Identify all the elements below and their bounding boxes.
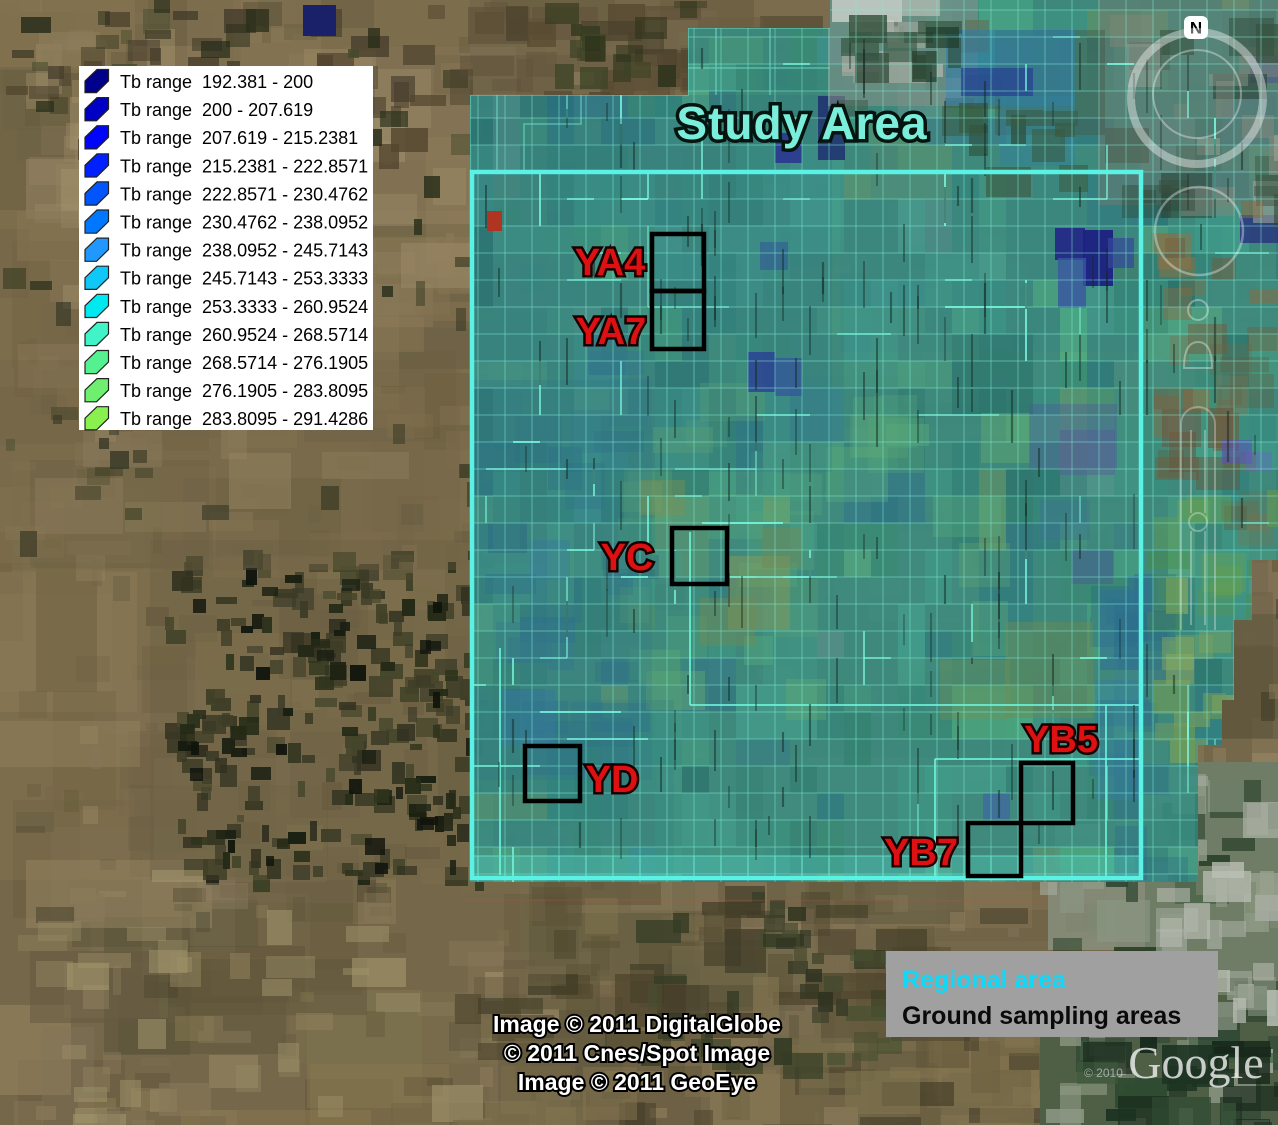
svg-text:Tb range 276.1905 - 283.8095: Tb range 276.1905 - 283.8095 <box>120 381 368 401</box>
svg-text:Tb range 200 - 207.619: Tb range 200 - 207.619 <box>120 100 313 120</box>
svg-text:Ground sampling areas: Ground sampling areas <box>902 1002 1181 1030</box>
svg-text:Tb range 238.0952 - 245.7143: Tb range 238.0952 - 245.7143 <box>120 241 368 261</box>
svg-text:Image © 2011 DigitalGlobe: Image © 2011 DigitalGlobe <box>493 1011 781 1037</box>
svg-text:Regional area: Regional area <box>902 966 1067 994</box>
svg-text:YB7: YB7 <box>884 832 958 874</box>
svg-text:Study Area: Study Area <box>676 97 927 149</box>
svg-text:Image © 2011 GeoEye: Image © 2011 GeoEye <box>518 1069 756 1095</box>
svg-text:YB5: YB5 <box>1024 719 1098 761</box>
svg-text:Tb range 245.7143 - 253.3333: Tb range 245.7143 - 253.3333 <box>120 269 368 289</box>
svg-text:Tb range 207.619 - 215.2381: Tb range 207.619 - 215.2381 <box>120 128 358 148</box>
svg-text:YD: YD <box>586 759 639 801</box>
svg-text:Tb range 230.4762 - 238.0952: Tb range 230.4762 - 238.0952 <box>120 213 368 233</box>
svg-text:Google: Google <box>1128 1037 1263 1088</box>
svg-text:Tb range 268.5714 - 276.1905: Tb range 268.5714 - 276.1905 <box>120 353 368 373</box>
svg-text:© 2010: © 2010 <box>1084 1066 1123 1080</box>
svg-text:YC: YC <box>601 537 654 579</box>
svg-text:YA4: YA4 <box>575 242 645 284</box>
svg-text:Tb range 192.381 - 200: Tb range 192.381 - 200 <box>120 72 313 92</box>
svg-text:Tb range 215.2381 - 222.8571: Tb range 215.2381 - 222.8571 <box>120 156 368 176</box>
svg-text:Tb range 222.8571 - 230.4762: Tb range 222.8571 - 230.4762 <box>120 184 368 204</box>
svg-text:Tb range 260.9524 - 268.5714: Tb range 260.9524 - 268.5714 <box>120 325 368 345</box>
svg-text:Tb range 283.8095 - 291.4286: Tb range 283.8095 - 291.4286 <box>120 409 368 429</box>
svg-text:YA7: YA7 <box>576 311 646 353</box>
svg-text:© 2011 Cnes/Spot Image: © 2011 Cnes/Spot Image <box>504 1040 770 1066</box>
svg-text:Tb range 253.3333 - 260.9524: Tb range 253.3333 - 260.9524 <box>120 297 368 317</box>
